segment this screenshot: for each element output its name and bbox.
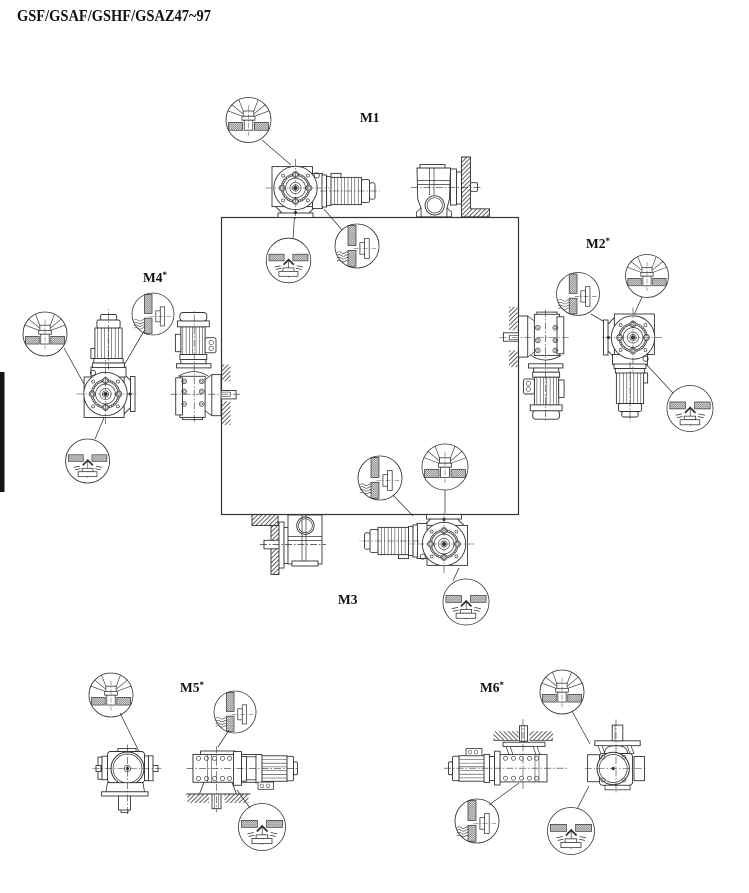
svg-text:GSF/GSAF/GSHF/GSAZ47~97: GSF/GSAF/GSHF/GSAZ47~97	[17, 6, 211, 25]
svg-text:M3: M3	[338, 592, 358, 607]
svg-text:M1: M1	[360, 110, 380, 125]
